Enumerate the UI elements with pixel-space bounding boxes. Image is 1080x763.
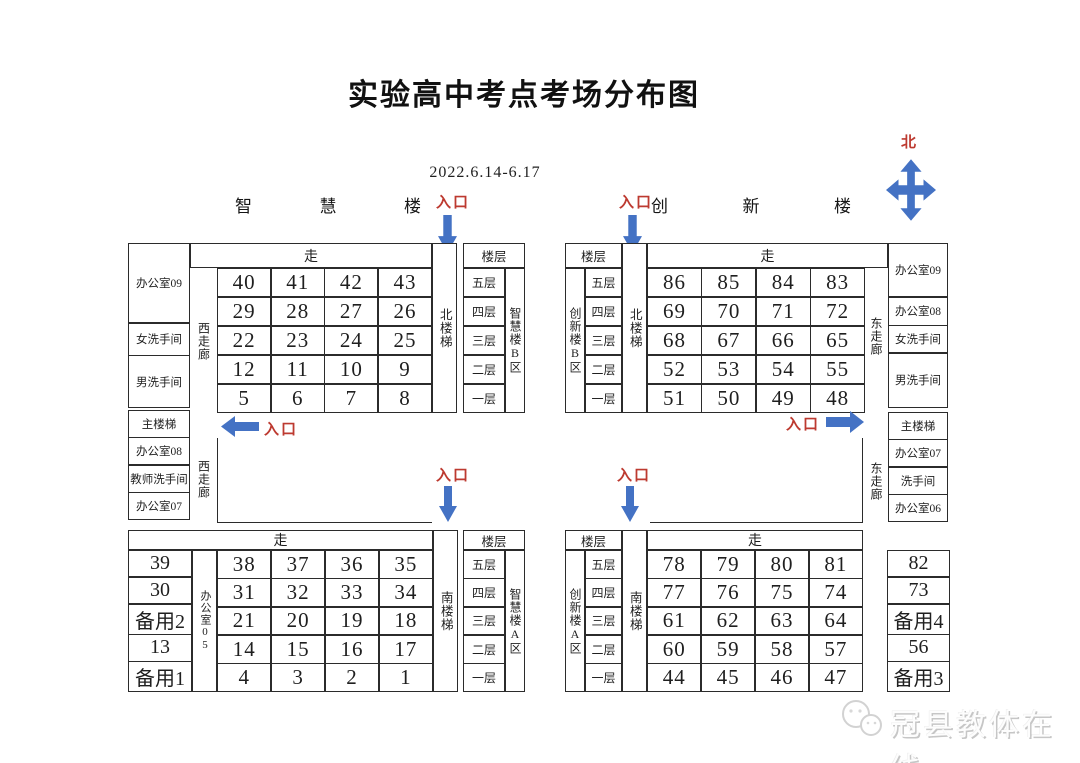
room-cell: 78 [648,551,700,578]
floor-cell: 一层 [464,385,504,412]
building-name-char: 慧 [320,192,337,217]
floor-cell: 五层 [586,269,621,296]
west-cells-bottom: 3930备用213备用1 [128,550,192,692]
floor-cell: 一层 [586,385,621,412]
entrance-label-south-west: 入口 [436,464,470,485]
entrance-label-main-west: 入口 [264,418,298,439]
room-cell: 41 [272,269,324,296]
room-cell: 52 [648,356,701,383]
room-cell: 12 [218,356,270,383]
floor-cell: 五层 [586,551,621,578]
room-cell: 86 [648,269,701,296]
room-cell: 62 [702,608,754,635]
room-cell: 26 [379,298,431,325]
room-cell: 32 [272,579,324,606]
room-cell: 24 [325,327,377,354]
room-cell: 46 [756,664,808,691]
room-grid-top-left: 40414243292827262223242512111095678 [217,268,432,413]
watermark-text: 冠县教体在线 [890,700,1080,763]
room-cell: 主楼梯 [129,411,189,437]
room-cell: 61 [648,608,700,635]
east-cells-bottom: 8273备用456备用3 [887,550,950,692]
room-cell: 70 [702,298,755,325]
compass-north-label: 北 [901,131,916,152]
room-cell: 76 [702,579,754,606]
room-cell: 83 [811,269,864,296]
entrance-label-north-west: 入口 [436,191,470,212]
building-name-wisdom: 智 慧 楼 [235,192,421,217]
building-name-char: 楼 [404,192,421,217]
room-cell: 81 [810,551,862,578]
courtyard-outline-left [217,438,432,523]
room-grid-bottom-left: 383736353132333421201918141516174321 [217,550,433,692]
room-cell: 27 [325,298,377,325]
room-cell: 48 [811,385,864,412]
room-grid-bottom-right: 7879808177767574616263646059585744454647 [647,550,863,692]
west-corridor-label-top: 西走廊 [190,310,217,372]
room-cell: 办公室09 [889,244,947,296]
room-cell: 40 [218,269,270,296]
room-cell: 63 [756,608,808,635]
office05-column: 办公室05 [192,550,217,692]
room-cell: 20 [272,608,324,635]
south-stairs-east: 南楼梯 [622,530,647,692]
mid-west-rooms: 主楼梯办公室08教师洗手间办公室07 [128,410,190,520]
room-cell: 29 [218,298,270,325]
floor-cell: 五层 [464,269,504,296]
corridor-header-top-right: 走 [647,243,888,268]
room-cell: 69 [648,298,701,325]
room-cell: 9 [379,356,431,383]
corridor-header-bottom-left: 走 [128,530,433,550]
room-cell: 66 [757,327,810,354]
room-cell: 办公室06 [889,495,947,521]
room-cell: 56 [888,635,949,660]
floor-header-top-left: 楼层 [463,243,525,268]
room-cell: 备用2 [129,605,191,634]
room-cell: 60 [648,636,700,663]
exam-map-page: 实验高中考点考场分布图 2022.6.14-6.17 智 慧 楼 创 新 楼 北… [0,0,1080,763]
room-cell: 45 [702,664,754,691]
floor-cell: 三层 [464,608,504,635]
entrance-label-north-east: 入口 [619,191,653,212]
room-cell: 80 [756,551,808,578]
room-cell: 18 [380,608,432,635]
room-cell: 办公室07 [129,493,189,519]
room-cell: 23 [272,327,324,354]
zone-label-innovation-b: 创新楼B区 [565,268,585,413]
room-cell: 办公室09 [129,244,189,322]
building-name-char: 创 [651,192,668,217]
room-cell: 6 [272,385,324,412]
floor-cell: 三层 [586,608,621,635]
room-cell: 3 [272,664,324,691]
room-cell: 洗手间 [889,468,947,494]
floors-bottom-left: 五层四层三层二层一层 [463,550,505,692]
floor-cell: 二层 [464,356,504,383]
mid-east-rooms: 主楼梯办公室07洗手间办公室06 [888,412,948,522]
room-cell: 54 [757,356,810,383]
room-cell: 主楼梯 [889,413,947,439]
floor-cell: 一层 [464,664,504,691]
room-cell: 37 [272,551,324,578]
room-cell: 女洗手间 [889,326,947,352]
room-cell: 55 [811,356,864,383]
floor-cell: 四层 [586,298,621,325]
room-cell: 28 [272,298,324,325]
room-cell: 67 [702,327,755,354]
date-range: 2022.6.14-6.17 [0,164,970,182]
west-rooms-top: 办公室09 女洗手间 男洗手间 [128,243,190,408]
floor-cell: 三层 [586,327,621,354]
entrance-label-main-east: 入口 [786,413,820,434]
room-cell: 备用1 [129,662,191,691]
room-cell: 68 [648,327,701,354]
zone-label-wisdom-a: 智慧楼A区 [505,550,525,692]
room-cell: 1 [380,664,432,691]
entrance-arrow-down-icon [621,485,639,523]
room-cell: 64 [810,608,862,635]
floor-cell: 四层 [464,579,504,606]
room-cell: 51 [648,385,701,412]
room-cell: 办公室08 [129,438,189,464]
floor-cell: 二层 [464,636,504,663]
room-cell: 17 [380,636,432,663]
building-name-char: 智 [235,192,252,217]
room-cell: 65 [811,327,864,354]
floors-top-right: 五层四层三层二层一层 [585,268,622,413]
room-cell: 59 [702,636,754,663]
room-cell: 22 [218,327,270,354]
room-cell: 79 [702,551,754,578]
room-cell: 36 [326,551,378,578]
room-cell: 49 [757,385,810,412]
room-cell: 73 [888,578,949,603]
room-cell: 13 [129,635,191,660]
room-cell: 教师洗手间 [129,466,189,492]
zone-label-wisdom-b: 智慧楼B区 [505,268,525,413]
room-cell: 19 [326,608,378,635]
north-stairs-west: 北楼梯 [432,243,457,413]
room-cell: 2 [326,664,378,691]
room-cell: 44 [648,664,700,691]
room-cell: 75 [756,579,808,606]
entrance-arrow-left-icon [221,416,259,437]
building-name-innovation: 创 新 楼 [651,192,851,217]
floors-top-left: 五层四层三层二层一层 [463,268,505,413]
room-cell: 38 [218,551,270,578]
east-corridor-label-bottom: 东走廊 [863,450,889,512]
room-cell: 办公室07 [889,440,947,466]
building-name-char: 新 [743,192,760,217]
room-cell: 58 [756,636,808,663]
floor-cell: 二层 [586,636,621,663]
room-cell: 10 [325,356,377,383]
room-cell: 15 [272,636,324,663]
room-cell: 77 [648,579,700,606]
floor-cell: 一层 [586,664,621,691]
room-cell: 男洗手间 [889,354,947,408]
floor-cell: 五层 [464,551,504,578]
room-cell: 4 [218,664,270,691]
floors-bottom-right: 五层四层三层二层一层 [585,550,622,692]
floor-header-bottom-right: 楼层 [565,530,622,550]
room-cell: 50 [702,385,755,412]
floor-cell: 二层 [586,356,621,383]
south-stairs-west: 南楼梯 [433,530,458,692]
entrance-arrow-down-icon [439,485,457,523]
room-cell: 35 [380,551,432,578]
room-cell: 39 [129,551,191,576]
zone-label-innovation-a: 创新楼A区 [565,550,585,692]
east-rooms-top: 办公室09 办公室08 女洗手间 男洗手间 [888,243,948,408]
room-cell: 男洗手间 [129,356,189,407]
corridor-header-top-left: 走 [190,243,432,268]
room-cell: 84 [757,269,810,296]
north-stairs-east: 北楼梯 [622,243,647,413]
corridor-header-bottom-right: 走 [647,530,863,550]
room-cell: 82 [888,551,949,576]
room-cell: 34 [380,579,432,606]
room-cell: 女洗手间 [129,324,189,355]
west-corridor-label-bottom: 西走廊 [190,448,217,510]
room-cell: 85 [702,269,755,296]
room-cell: 30 [129,578,191,603]
floor-cell: 三层 [464,327,504,354]
room-cell: 25 [379,327,431,354]
room-cell: 31 [218,579,270,606]
room-cell: 16 [326,636,378,663]
room-cell: 备用3 [888,662,949,691]
floor-header-top-right: 楼层 [565,243,622,268]
room-grid-top-right: 8685848369707172686766655253545551504948 [647,268,865,413]
room-cell: 备用4 [888,605,949,634]
room-cell: 72 [811,298,864,325]
room-cell: 74 [810,579,862,606]
room-cell: 办公室08 [889,298,947,325]
room-cell: 7 [325,385,377,412]
room-cell: 11 [272,356,324,383]
entrance-arrow-right-icon [826,411,864,433]
floor-cell: 四层 [464,298,504,325]
entrance-label-south-east: 入口 [617,464,651,485]
room-cell: 57 [810,636,862,663]
room-cell: 14 [218,636,270,663]
building-name-char: 楼 [834,192,851,217]
east-corridor-label-top: 东走廊 [863,305,889,367]
room-cell: 47 [810,664,862,691]
room-cell: 21 [218,608,270,635]
floor-cell: 四层 [586,579,621,606]
courtyard-outline-right [650,438,863,523]
compass-icon [886,158,936,222]
room-cell: 8 [379,385,431,412]
floor-header-bottom-left: 楼层 [463,530,525,550]
room-cell: 5 [218,385,270,412]
page-title: 实验高中考点考场分布图 [0,70,1048,114]
room-cell: 53 [702,356,755,383]
room-cell: 43 [379,269,431,296]
wechat-logo-icon [840,698,884,740]
room-cell: 42 [325,269,377,296]
room-cell: 71 [757,298,810,325]
room-cell: 33 [326,579,378,606]
